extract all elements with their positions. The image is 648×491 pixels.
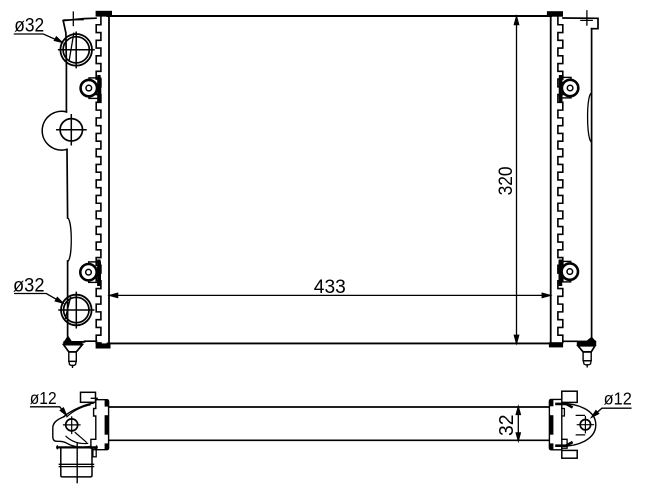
svg-text:ø32: ø32 xyxy=(14,15,44,37)
svg-text:32: 32 xyxy=(496,415,518,437)
svg-text:ø12: ø12 xyxy=(604,389,632,409)
svg-text:433: 433 xyxy=(314,277,346,298)
svg-text:ø12: ø12 xyxy=(30,388,57,408)
svg-text:320: 320 xyxy=(495,166,517,195)
